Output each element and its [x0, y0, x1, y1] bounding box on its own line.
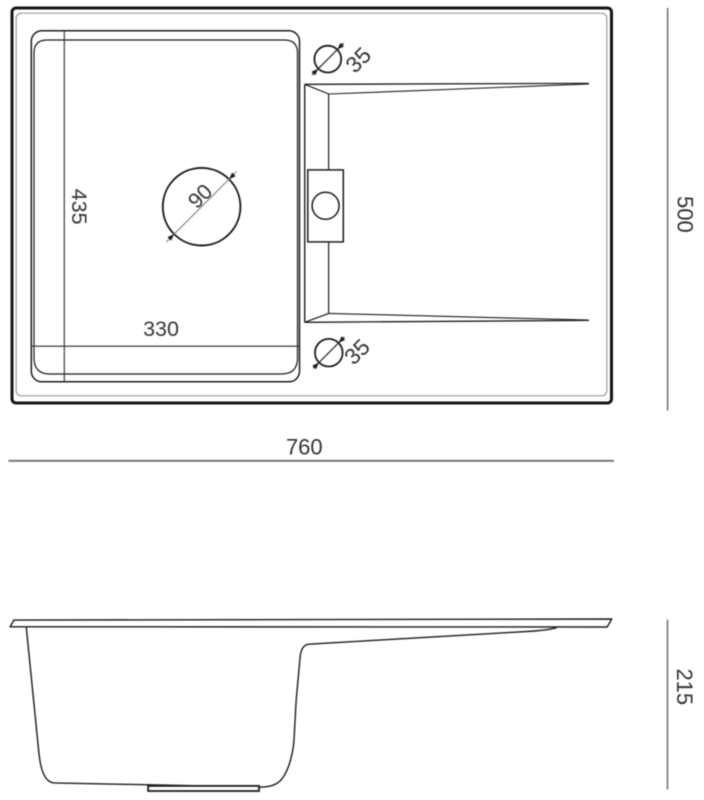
- svg-text:215: 215: [672, 668, 697, 705]
- svg-text:760: 760: [286, 435, 323, 460]
- svg-text:435: 435: [67, 189, 91, 225]
- svg-text:500: 500: [673, 196, 698, 233]
- svg-text:330: 330: [143, 317, 179, 341]
